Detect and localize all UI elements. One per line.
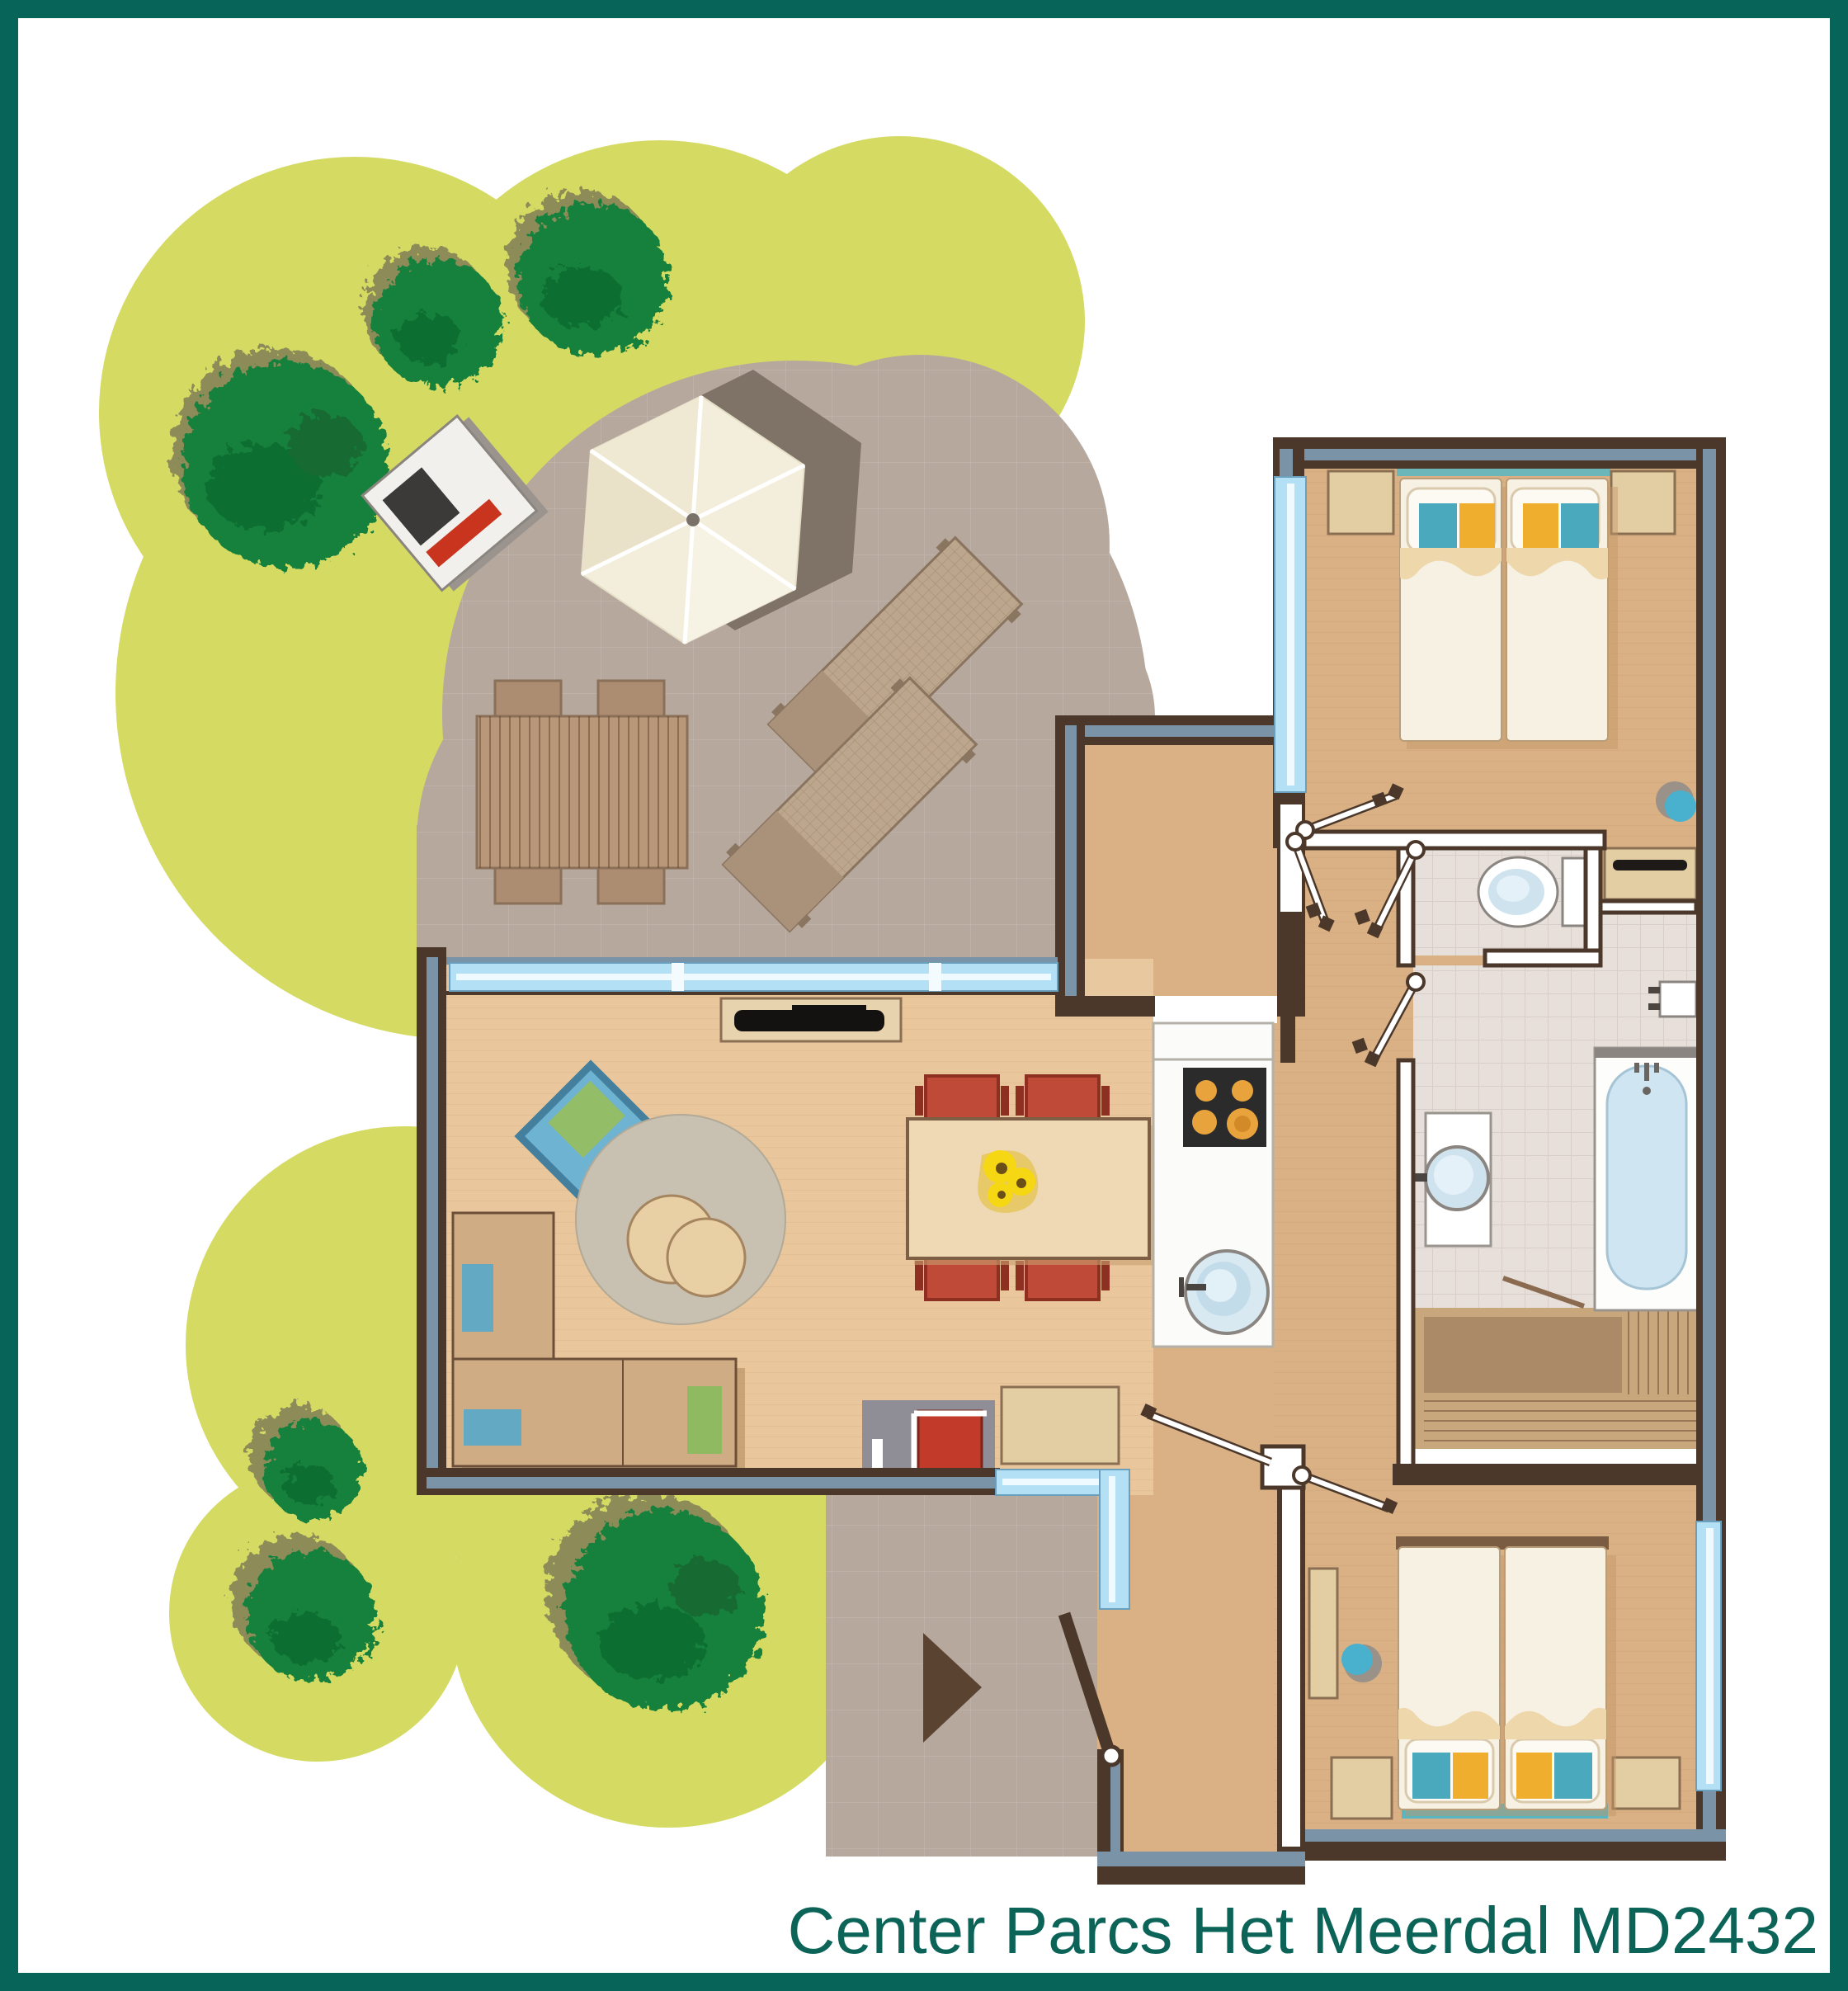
svg-text:Center Parcs Het Meerdal MD243: Center Parcs Het Meerdal MD2432	[788, 1894, 1818, 1967]
